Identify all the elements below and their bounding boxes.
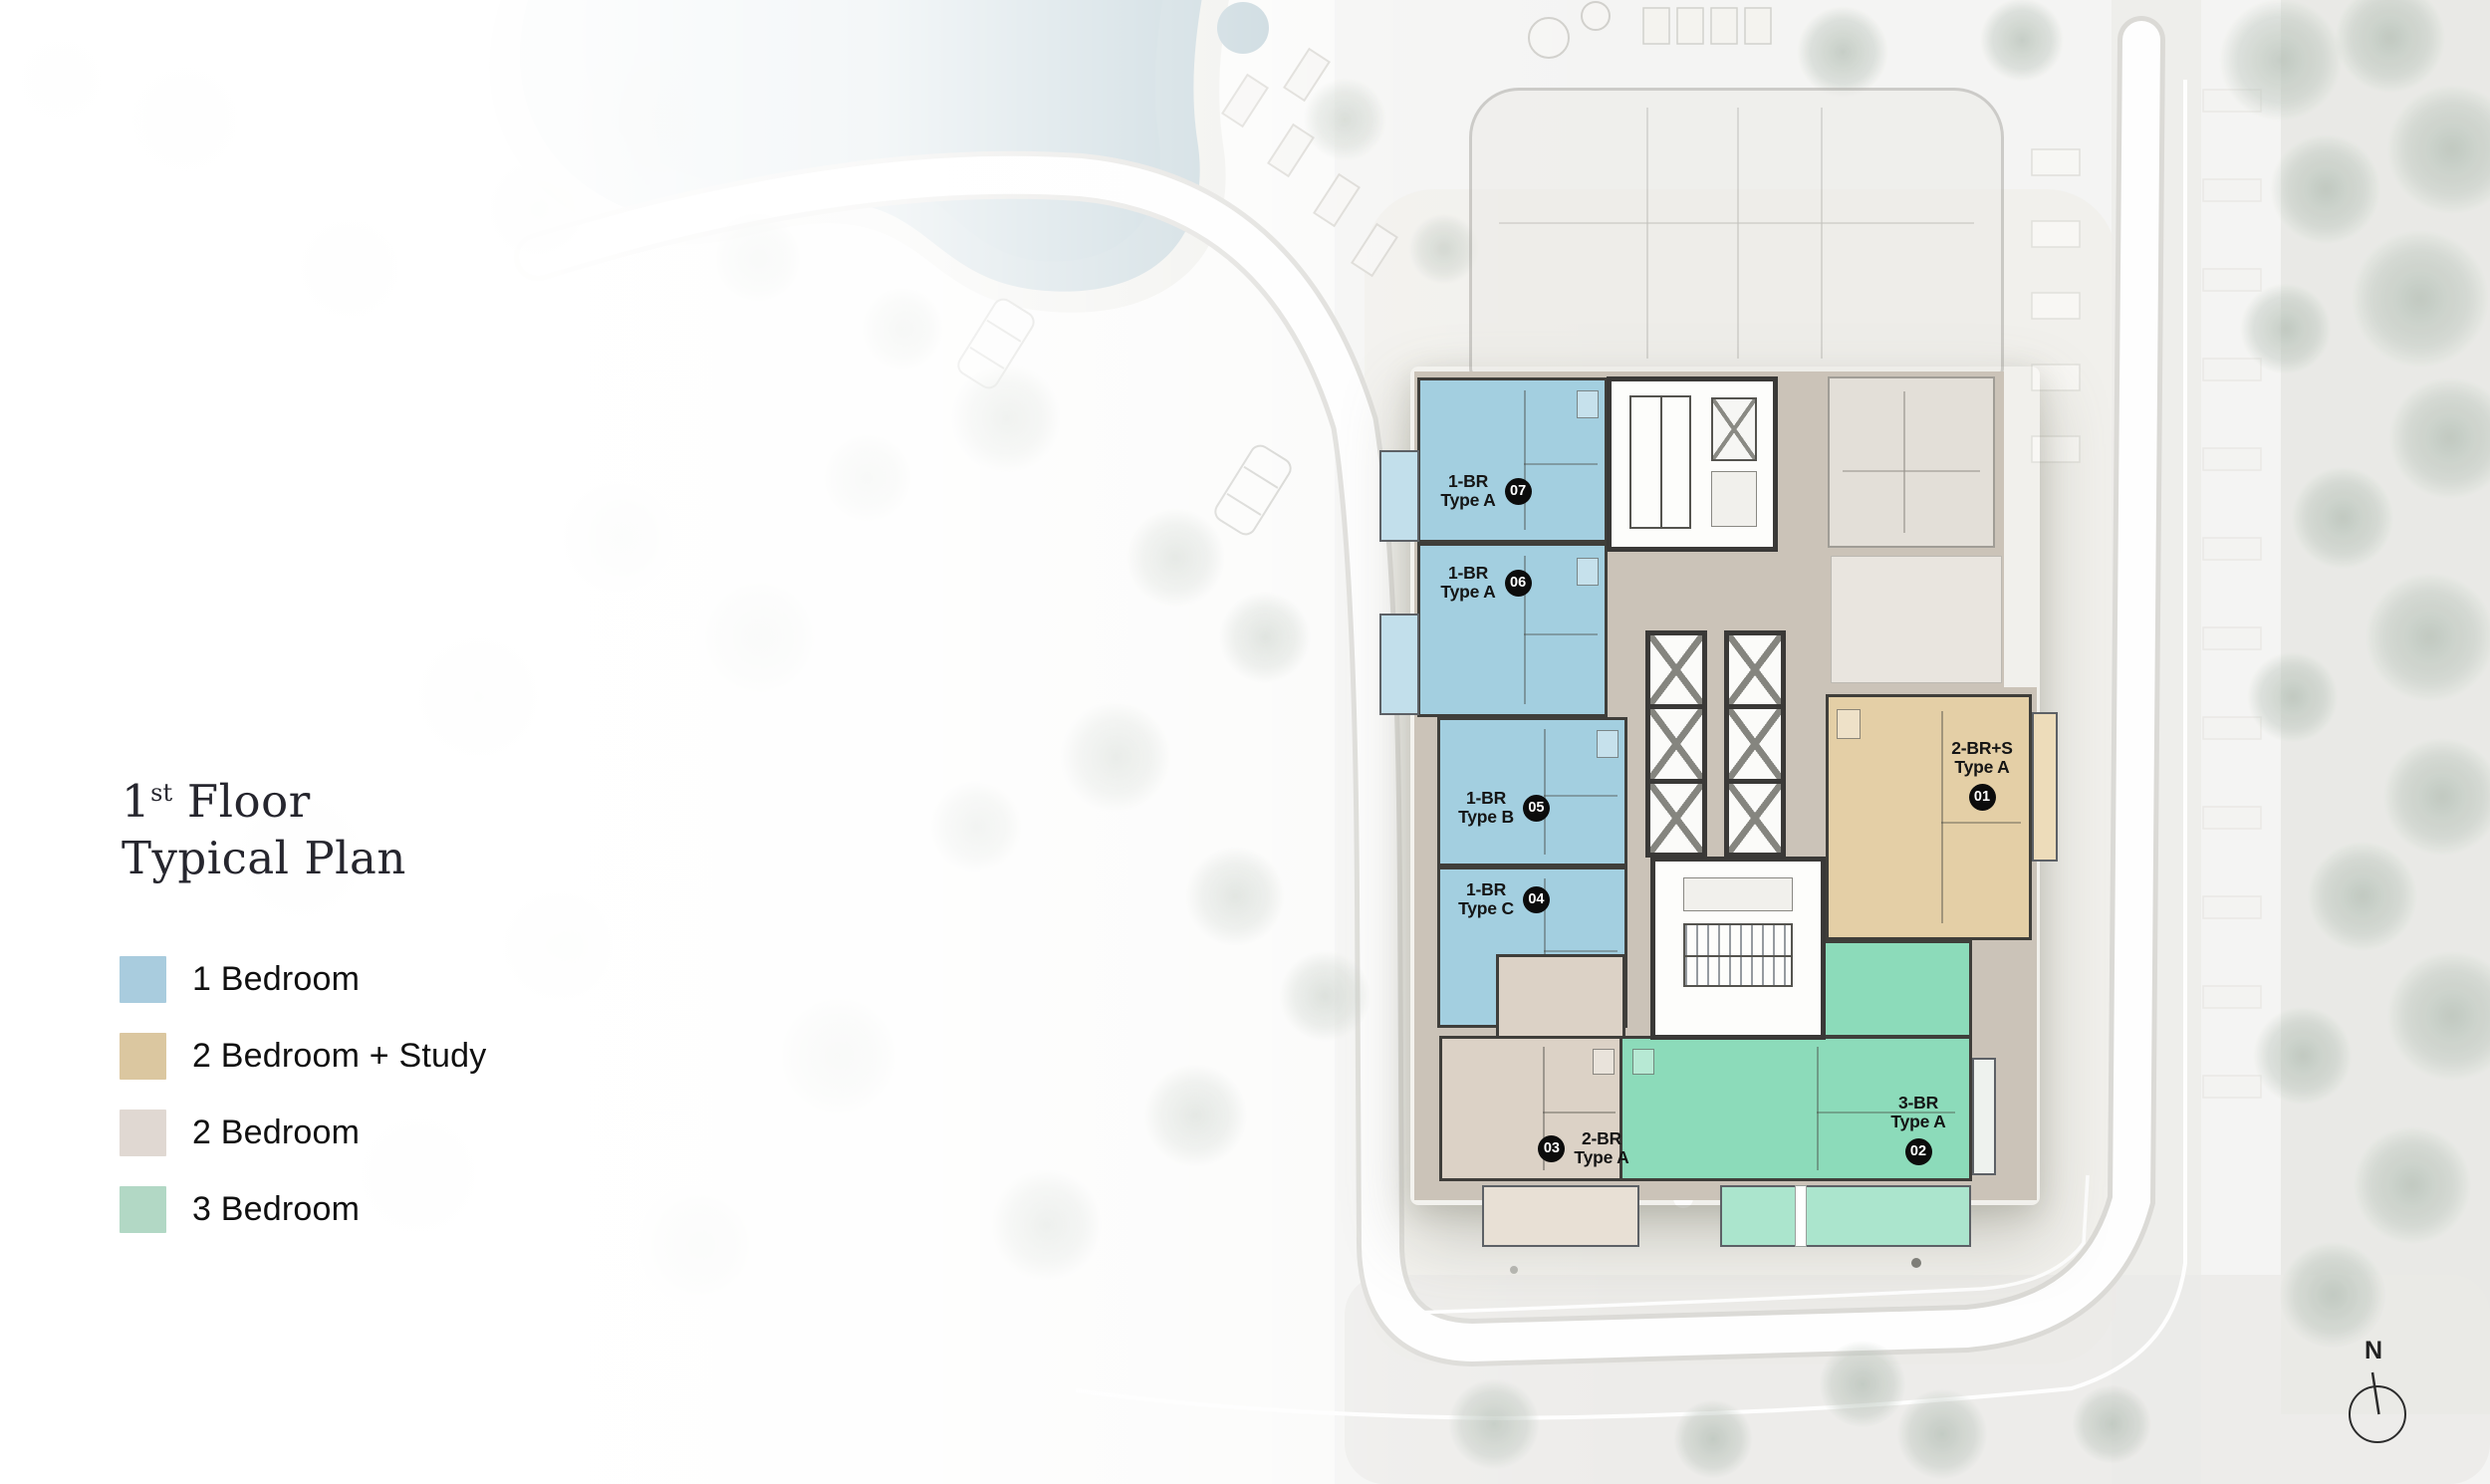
- legend-item-2-bedroom: 2 Bedroom: [120, 1110, 360, 1156]
- legend-item-1-bedroom: 1 Bedroom: [120, 956, 360, 1003]
- compass-needle-icon: [2341, 1351, 2420, 1446]
- page-title-line1: 1st Floor: [122, 765, 406, 830]
- page-title: 1st Floor Typical Plan: [122, 765, 406, 886]
- annotation-layer: 1st Floor Typical Plan 1 Bedroom 2 Bedro…: [0, 0, 2490, 1484]
- legend-label: 1 Bedroom: [192, 960, 360, 999]
- legend-swatch-2-bedroom: [120, 1110, 166, 1156]
- floorplan-page: 1-BR Type A 07 1-BR Type A 06 1-BR Type …: [0, 0, 2490, 1484]
- page-title-line2: Typical Plan: [122, 830, 406, 886]
- legend-label: 2 Bedroom: [192, 1113, 360, 1152]
- legend-label: 3 Bedroom: [192, 1190, 360, 1229]
- legend-swatch-2-bedroom-study: [120, 1033, 166, 1080]
- legend-swatch-3-bedroom: [120, 1186, 166, 1233]
- legend-item-3-bedroom: 3 Bedroom: [120, 1186, 360, 1233]
- legend-swatch-1-bedroom: [120, 956, 166, 1003]
- legend-label: 2 Bedroom + Study: [192, 1037, 486, 1076]
- legend-item-2-bedroom-study: 2 Bedroom + Study: [120, 1033, 486, 1080]
